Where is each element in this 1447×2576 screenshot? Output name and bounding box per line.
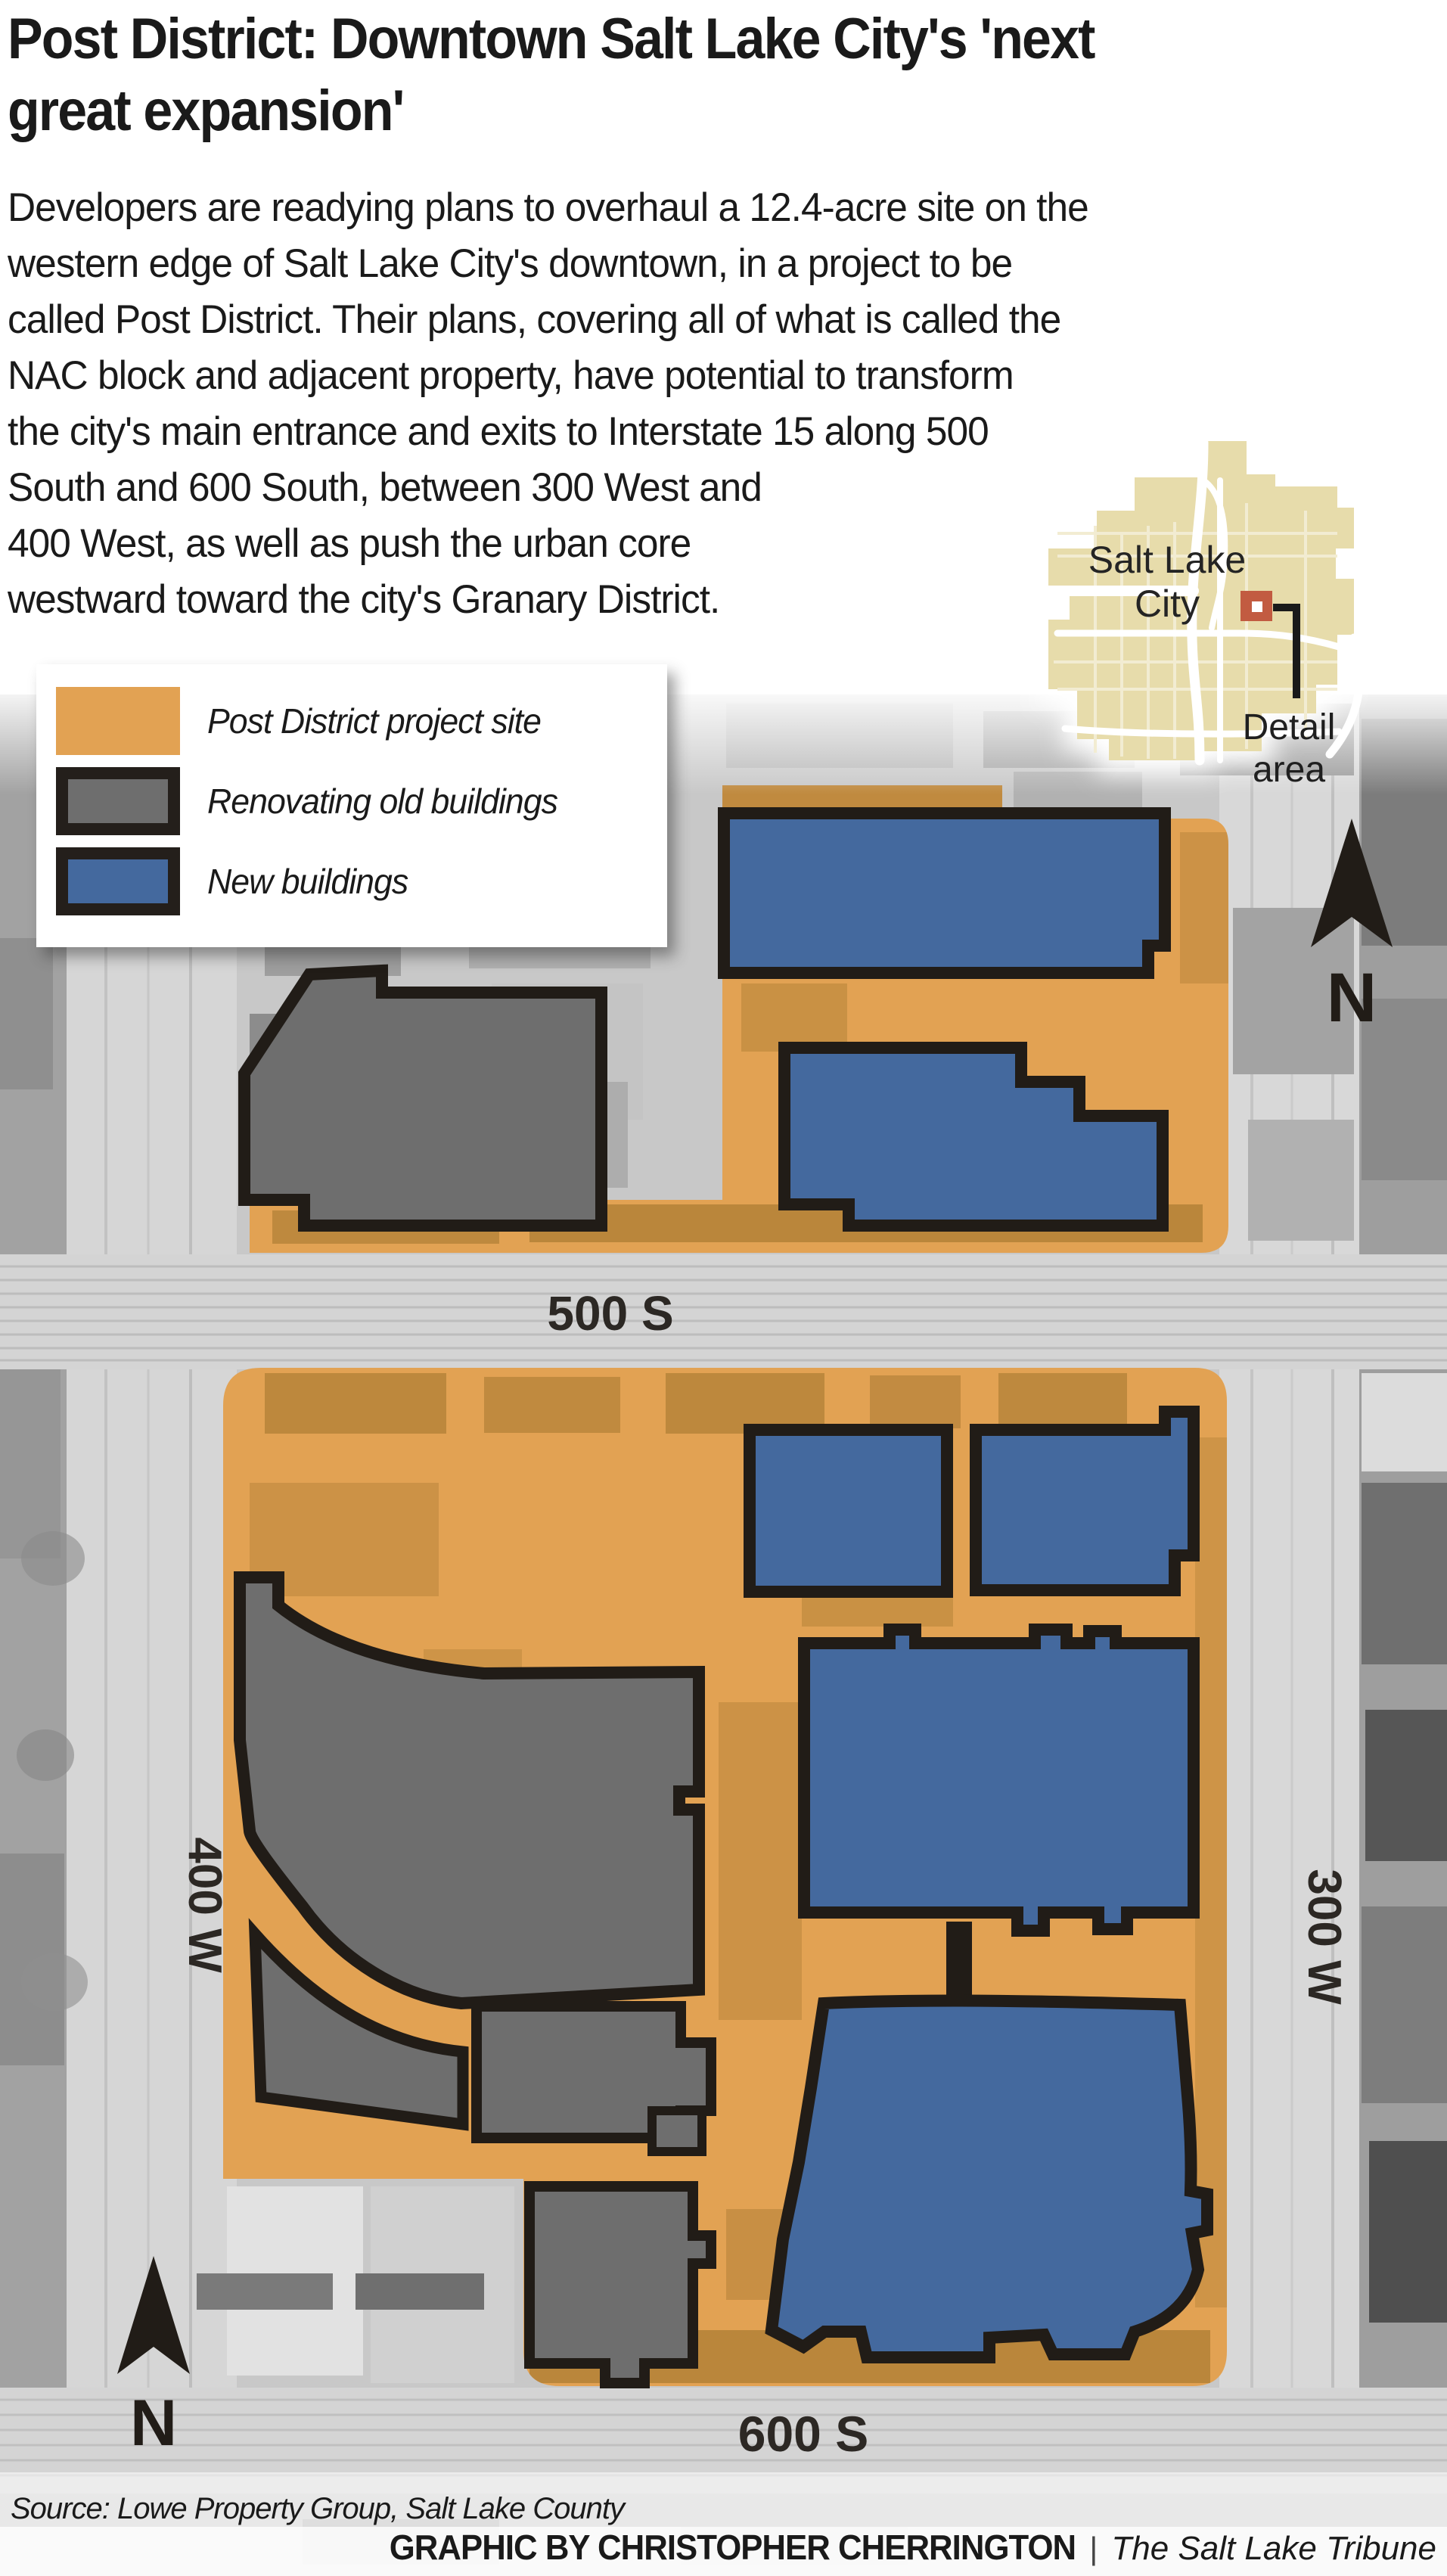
- page: 500 S 600 S 400 W 300 W N N Post Distric…: [0, 0, 1447, 2576]
- intro-line: Developers are readying plans to overhau…: [8, 180, 1088, 236]
- map-legend: Post District project site Renovating ol…: [36, 664, 667, 947]
- detail-area-marker-center: [1252, 601, 1262, 612]
- intro-line: 400 West, as well as push the urban core: [8, 516, 1088, 572]
- new-building-small-a: [750, 1430, 947, 1592]
- legend-swatch: [56, 847, 180, 915]
- renovated-building-north: [244, 971, 601, 1226]
- intro-line: NAC block and adjacent property, have po…: [8, 348, 1088, 404]
- renovated-building-tiny: [652, 2111, 702, 2152]
- intro-line: western edge of Salt Lake City's downtow…: [8, 236, 1088, 292]
- legend-item: Post District project site: [56, 687, 641, 755]
- street-label-400w: 400 W: [179, 1837, 231, 1973]
- source-credit: Source: Lowe Property Group, Salt Lake C…: [11, 2492, 624, 2526]
- legend-swatch: [56, 767, 180, 835]
- byline: GRAPHIC BY CHRISTOPHER CHERRINGTON | The…: [353, 2527, 1436, 2568]
- detail-area-label-1: Detail: [1243, 707, 1336, 747]
- locator-inset-map: Salt Lake City Detail area: [1012, 435, 1447, 878]
- new-building-central: [804, 1630, 1194, 1931]
- intro-paragraph: Developers are readying plans to overhau…: [8, 180, 1122, 628]
- byline-author: GRAPHIC BY CHRISTOPHER CHERRINGTON: [390, 2527, 1076, 2568]
- street-label-500s: 500 S: [547, 1286, 673, 1341]
- intro-line: called Post District. Their plans, cover…: [8, 292, 1088, 348]
- legend-swatch: [56, 687, 180, 755]
- headline-line: Post District: Downtown Salt Lake City's…: [8, 3, 1095, 75]
- new-building-small-b: [976, 1412, 1194, 1590]
- legend-item-label: Renovating old buildings: [207, 781, 557, 822]
- new-building-south: [772, 2000, 1207, 2357]
- street-label-600s: 600 S: [738, 2406, 868, 2462]
- north-arrow-label: N: [130, 2387, 177, 2459]
- headline-line: great expansion': [8, 75, 1095, 147]
- legend-item-label: Post District project site: [207, 701, 541, 741]
- intro-line: South and 600 South, between 300 West an…: [8, 460, 1088, 516]
- byline-publication: The Salt Lake Tribune: [1111, 2530, 1436, 2568]
- renovated-building-south: [529, 2186, 711, 2383]
- legend-item: New buildings: [56, 847, 641, 915]
- inset-city-label-1: Salt Lake: [1088, 539, 1246, 581]
- north-arrow-label: N: [1327, 959, 1377, 1036]
- detail-area-label-2: area: [1253, 750, 1325, 790]
- intro-line: the city's main entrance and exits to In…: [8, 404, 1088, 460]
- inset-city-label-2: City: [1135, 583, 1200, 625]
- headline: Post District: Downtown Salt Lake City's…: [8, 3, 1189, 147]
- legend-item-label: New buildings: [207, 861, 408, 902]
- intro-line: westward toward the city's Granary Distr…: [8, 572, 1088, 628]
- legend-item: Renovating old buildings: [56, 767, 641, 835]
- byline-separator: |: [1089, 2531, 1098, 2567]
- street-label-300w: 300 W: [1298, 1869, 1350, 2005]
